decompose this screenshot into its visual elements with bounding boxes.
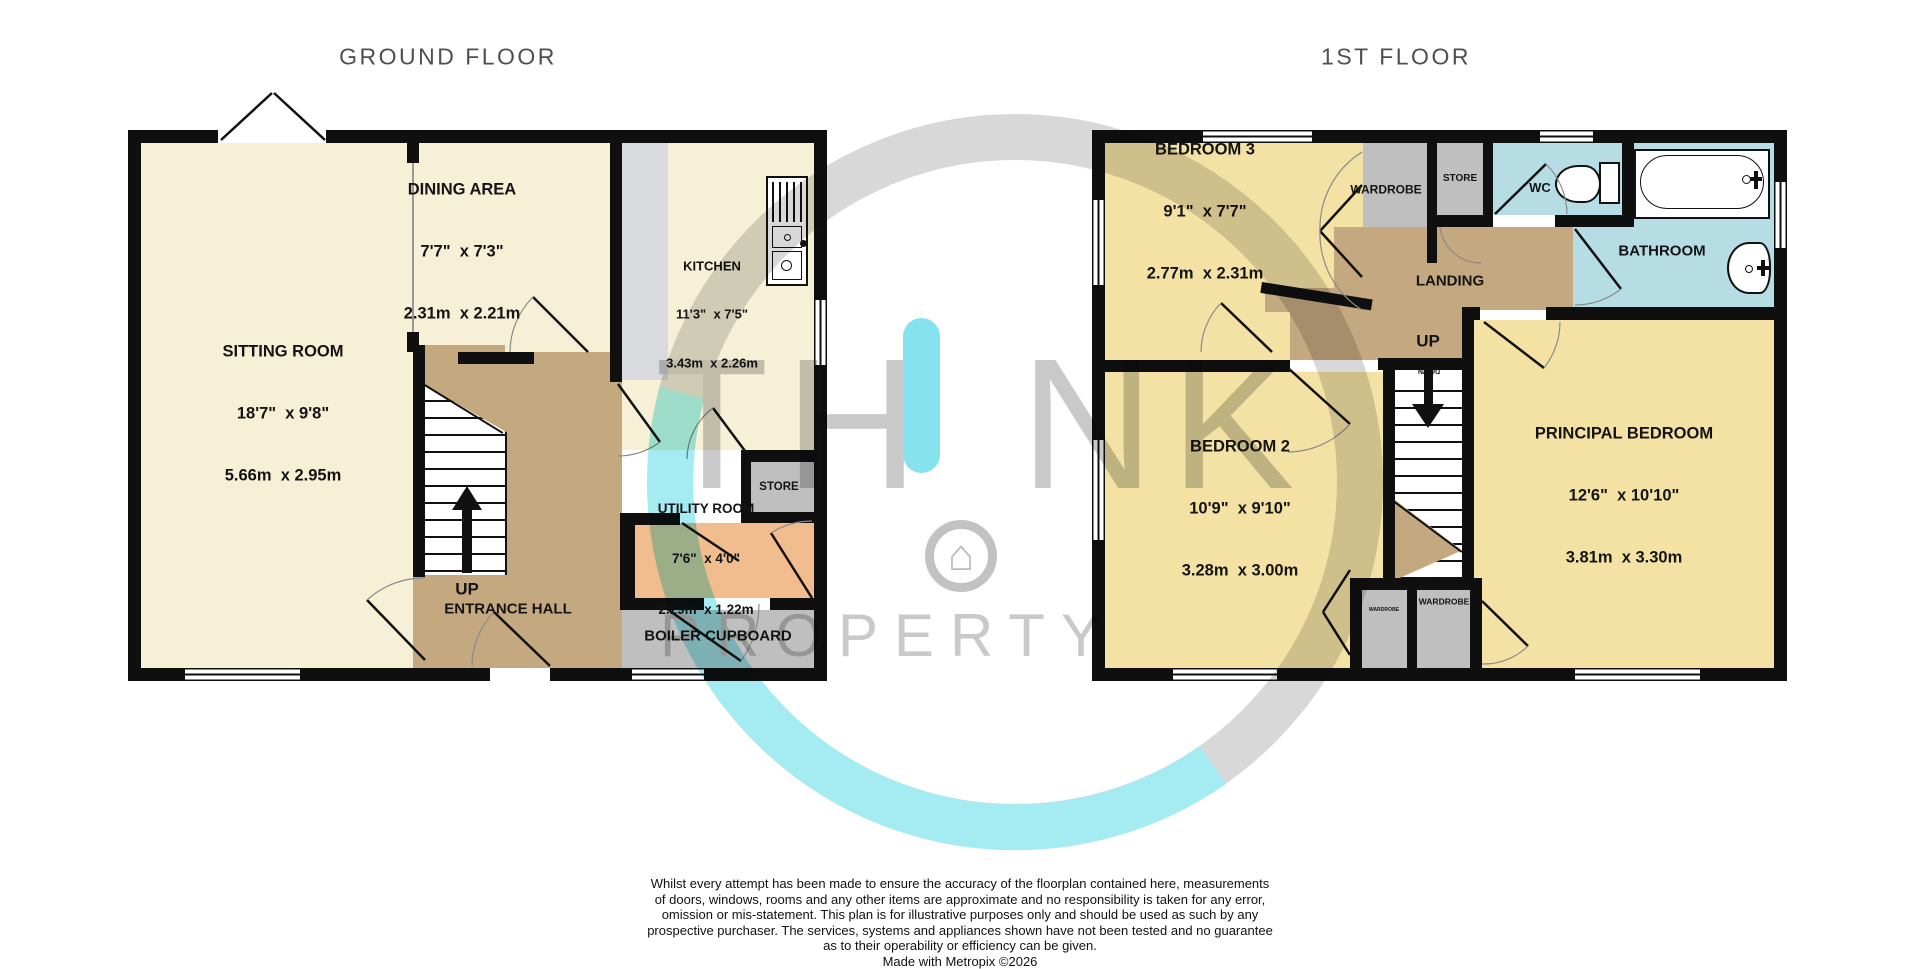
kitchen-label: KITCHEN 11'3" x 7'5" 3.43m x 2.26m xyxy=(666,226,758,405)
room-dims-metric: 2.31m x 2.21m xyxy=(404,304,521,325)
up-arrow-icon xyxy=(452,486,482,510)
entrance-hall-label: ENTRANCE HALL xyxy=(444,601,572,620)
toilet-bowl-icon xyxy=(1555,165,1601,203)
window xyxy=(814,300,827,365)
wall-segment xyxy=(610,143,622,382)
room-dims-metric: 3.81m x 3.30m xyxy=(1535,548,1713,569)
watermark-exclamation-icon xyxy=(903,318,940,473)
basin-icon xyxy=(1727,242,1771,294)
wall-segment xyxy=(620,513,635,598)
store-ground-label: STORE xyxy=(759,480,798,494)
room-name: BEDROOM 2 xyxy=(1182,437,1299,458)
boiler-cupboard-label: BOILER CUPBOARD xyxy=(644,628,792,647)
french-door-opening xyxy=(218,130,326,143)
down-arrow-icon xyxy=(1412,404,1444,428)
wardrobe-bedroom-2-label: WARDROBE xyxy=(1369,608,1399,614)
wall-segment xyxy=(1555,215,1622,227)
wall-segment xyxy=(1350,578,1482,590)
stairs-up-label-first: UP xyxy=(1416,330,1440,351)
room-name: BEDROOM 3 xyxy=(1147,140,1264,161)
wall-segment xyxy=(814,130,827,681)
window xyxy=(1092,200,1105,285)
room-dims-imperial: 7'7" x 7'3" xyxy=(404,242,521,263)
room-dims-imperial: 10'9" x 9'10" xyxy=(1182,499,1299,520)
house-icon: ⌂ xyxy=(948,534,975,578)
wardrobe-bedroom-2 xyxy=(1362,590,1407,668)
window xyxy=(185,668,300,681)
window xyxy=(632,668,704,681)
principal-bedroom-label: PRINCIPAL BEDROOM 12'6" x 10'10" 3.81m x… xyxy=(1535,383,1713,610)
room-dims-imperial: 9'1" x 7'7" xyxy=(1147,202,1264,223)
wall-segment xyxy=(770,598,814,610)
wc-label: WC xyxy=(1529,180,1551,196)
stairs-ground xyxy=(425,345,505,575)
front-door-opening xyxy=(490,668,550,681)
store-first-label: STORE xyxy=(1443,173,1477,186)
stairs-first: DOWN xyxy=(1395,358,1462,580)
wall-segment xyxy=(1546,307,1774,320)
wall-segment xyxy=(128,130,141,681)
window xyxy=(1575,668,1700,681)
wall-segment xyxy=(741,450,814,462)
wardrobe-bedroom-3-label: WARDROBE xyxy=(1350,183,1421,198)
disclaimer-line: as to their operability or efficiency ca… xyxy=(647,938,1273,954)
bedroom-2-label: BEDROOM 2 10'9" x 9'10" 3.28m x 3.00m xyxy=(1182,396,1299,623)
bedroom-3-label: BEDROOM 3 9'1" x 7'7" 2.77m x 2.31m xyxy=(1147,99,1264,326)
wall-segment xyxy=(1427,143,1437,263)
room-name: DINING AREA xyxy=(404,180,521,201)
wall-segment xyxy=(1622,143,1634,227)
window xyxy=(1092,440,1105,540)
room-dims-metric: 2.77m x 2.31m xyxy=(1147,264,1264,285)
landing xyxy=(1290,310,1383,360)
wall-segment xyxy=(1383,358,1395,580)
room-dims-metric: 2.29m x 1.22m xyxy=(658,602,755,619)
wall-segment xyxy=(1407,590,1417,668)
bathroom-lower xyxy=(1573,227,1634,307)
window xyxy=(1774,182,1787,248)
dining-area-label: DINING AREA 7'7" x 7'3" 2.31m x 2.21m xyxy=(404,139,521,366)
room-dims-imperial: 18'7" x 9'8" xyxy=(223,404,344,425)
bathroom-label: BATHROOM xyxy=(1618,243,1705,262)
room-dims-metric: 3.28m x 3.00m xyxy=(1182,561,1299,582)
room-name: SITTING ROOM xyxy=(223,342,344,363)
room-name: PRINCIPAL BEDROOM xyxy=(1535,424,1713,445)
window xyxy=(1173,668,1277,681)
toilet-cistern-icon xyxy=(1599,162,1620,204)
floorplan-canvas: GROUND FLOOR 1ST FLOOR xyxy=(0,0,1920,969)
metropix-credit: Made with Metropix ©2026 xyxy=(647,954,1273,969)
disclaimer: Whilst every attempt has been made to en… xyxy=(647,876,1273,969)
wall-segment xyxy=(1462,307,1474,580)
room-dims-imperial: 11'3" x 7'5" xyxy=(666,307,758,323)
wall-segment xyxy=(1470,590,1482,668)
room-name: UTILITY ROOM xyxy=(658,501,755,518)
wall-segment xyxy=(1350,590,1362,668)
utility-room-label: UTILITY ROOM 7'6" x 4'0" 2.29m x 1.22m xyxy=(658,467,755,653)
kitchen-sink-icon xyxy=(766,176,808,286)
room-dims-imperial: 12'6" x 10'10" xyxy=(1535,486,1713,507)
bathtub-icon xyxy=(1634,149,1770,219)
kitchen-counter xyxy=(622,143,668,380)
wardrobe-principal-label: WARDROBE xyxy=(1419,597,1470,608)
window xyxy=(1540,130,1593,143)
landing-label: LANDING xyxy=(1416,273,1484,292)
sitting-room-label: SITTING ROOM 18'7" x 9'8" 5.66m x 2.95m xyxy=(223,301,344,528)
wall-segment xyxy=(1427,215,1493,227)
disclaimer-line: of doors, windows, rooms and any other i… xyxy=(647,892,1273,908)
room-dims-metric: 5.66m x 2.95m xyxy=(223,466,344,487)
wall-segment xyxy=(1483,143,1493,215)
disclaimer-line: Whilst every attempt has been made to en… xyxy=(647,876,1273,892)
room-dims-imperial: 7'6" x 4'0" xyxy=(658,552,755,569)
room-name: KITCHEN xyxy=(666,258,758,274)
house-in-circle-icon: ⌂ xyxy=(925,520,997,592)
disclaimer-line: prospective purchaser. The services, sys… xyxy=(647,923,1273,939)
wall-segment xyxy=(1105,360,1290,372)
stairs-up-label-ground: UP xyxy=(455,578,479,599)
room-dims-metric: 3.43m x 2.26m xyxy=(666,356,758,372)
disclaimer-line: omission or mis-statement. This plan is … xyxy=(647,907,1273,923)
first-floor-title: 1ST FLOOR xyxy=(1321,44,1471,71)
ground-floor-title: GROUND FLOOR xyxy=(339,44,557,71)
wall-segment xyxy=(413,345,425,577)
